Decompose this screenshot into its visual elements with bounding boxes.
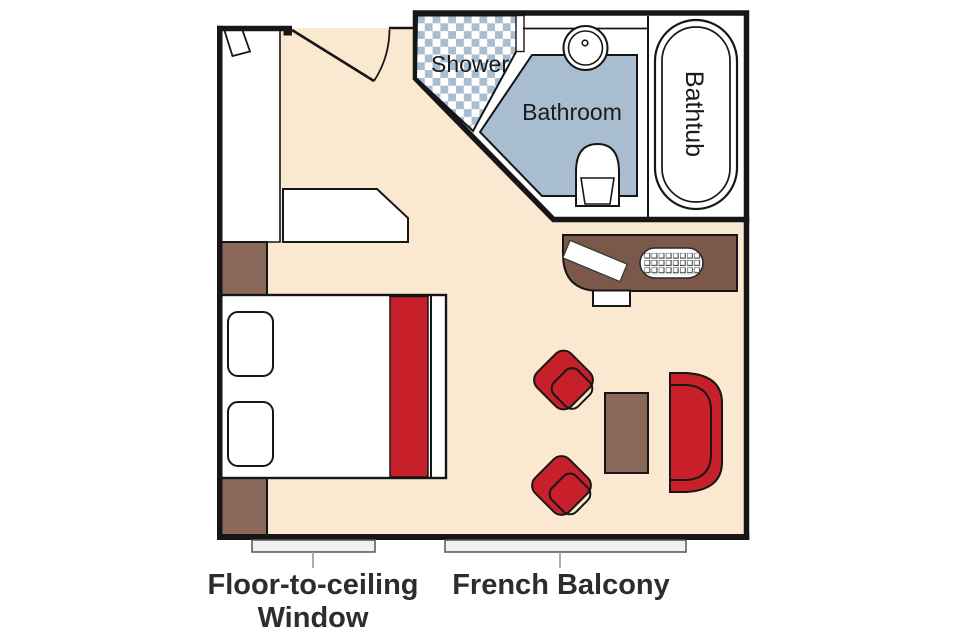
window-caption-line2: Window bbox=[258, 602, 369, 634]
toilet-seat bbox=[581, 178, 614, 204]
pillow-top bbox=[228, 312, 273, 376]
window-caption-line1: Floor-to-ceiling bbox=[207, 569, 418, 601]
desk-stool bbox=[593, 291, 630, 307]
floor-to-ceiling-window-bar bbox=[252, 540, 375, 552]
nightstand-bottom bbox=[218, 478, 267, 537]
bathroom-label: Bathroom bbox=[522, 99, 622, 125]
bathtub-label: Bathtub bbox=[680, 71, 708, 157]
pillow-bottom bbox=[228, 402, 273, 466]
floor-plan-drawing: Shower Bathroom Bathtub Floor-to-ceiling… bbox=[0, 0, 960, 640]
french-balcony-bar bbox=[445, 540, 686, 552]
shower-partition bbox=[516, 16, 524, 52]
cabin-floor-plan: Shower Bathroom Bathtub Floor-to-ceiling… bbox=[0, 0, 960, 640]
coffee-table bbox=[605, 393, 648, 473]
sink-drain bbox=[582, 40, 588, 46]
armchair bbox=[670, 373, 722, 492]
wardrobe bbox=[222, 28, 280, 242]
balcony-caption: French Balcony bbox=[452, 569, 670, 601]
bed-runner bbox=[390, 297, 428, 478]
vanity-tray-grid bbox=[645, 253, 701, 275]
shower-label: Shower bbox=[431, 51, 509, 77]
nightstand-top bbox=[218, 242, 267, 297]
door-jamb bbox=[284, 26, 293, 36]
sink bbox=[564, 26, 608, 70]
